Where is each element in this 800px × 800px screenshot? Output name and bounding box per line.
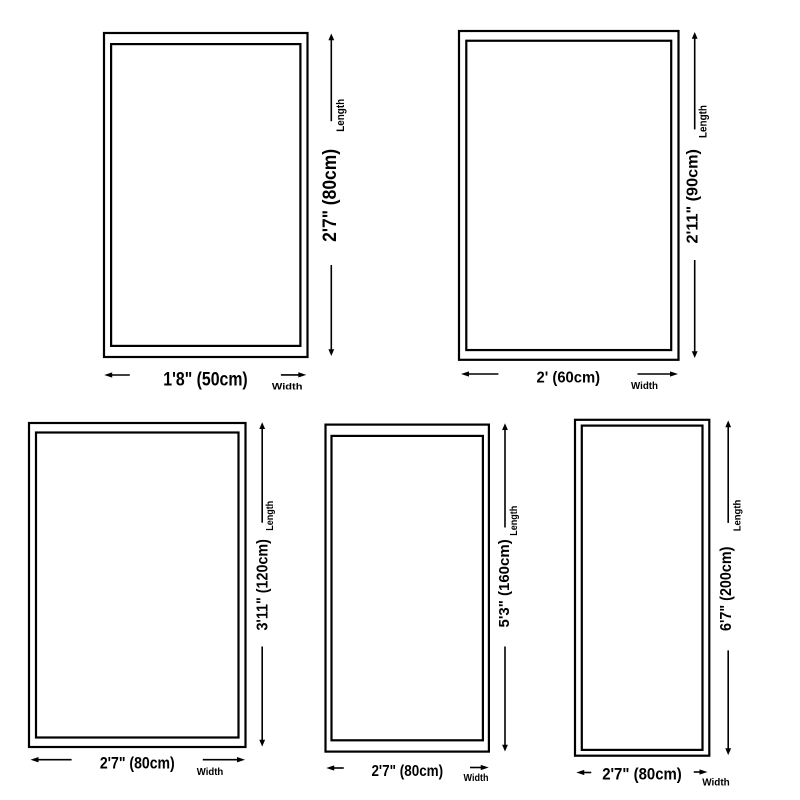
svg-text:2'11" (90cm): 2'11" (90cm)	[685, 149, 702, 244]
svg-text:3'11" (120cm): 3'11" (120cm)	[254, 539, 271, 631]
svg-text:Length: Length	[698, 105, 710, 138]
svg-text:Width: Width	[464, 773, 489, 784]
svg-text:Length: Length	[731, 500, 743, 532]
svg-text:Width: Width	[197, 767, 224, 778]
svg-text:Width: Width	[702, 778, 730, 789]
svg-text:2'7" (80cm): 2'7" (80cm)	[100, 755, 175, 773]
svg-text:5'3" (160cm): 5'3" (160cm)	[496, 539, 513, 627]
svg-text:Width: Width	[631, 381, 658, 392]
svg-text:Length: Length	[264, 501, 276, 531]
svg-text:2'7" (80cm): 2'7" (80cm)	[371, 763, 443, 780]
svg-text:Length: Length	[335, 99, 347, 132]
svg-text:2' (60cm): 2' (60cm)	[537, 370, 601, 387]
svg-text:2'7" (80cm): 2'7" (80cm)	[319, 149, 341, 242]
svg-text:2'7" (80cm): 2'7" (80cm)	[602, 765, 682, 784]
svg-text:Length: Length	[508, 506, 520, 536]
svg-text:Width: Width	[272, 381, 303, 392]
svg-text:1'8" (50cm): 1'8" (50cm)	[163, 368, 247, 390]
svg-text:6'7" (200cm): 6'7" (200cm)	[718, 547, 735, 631]
